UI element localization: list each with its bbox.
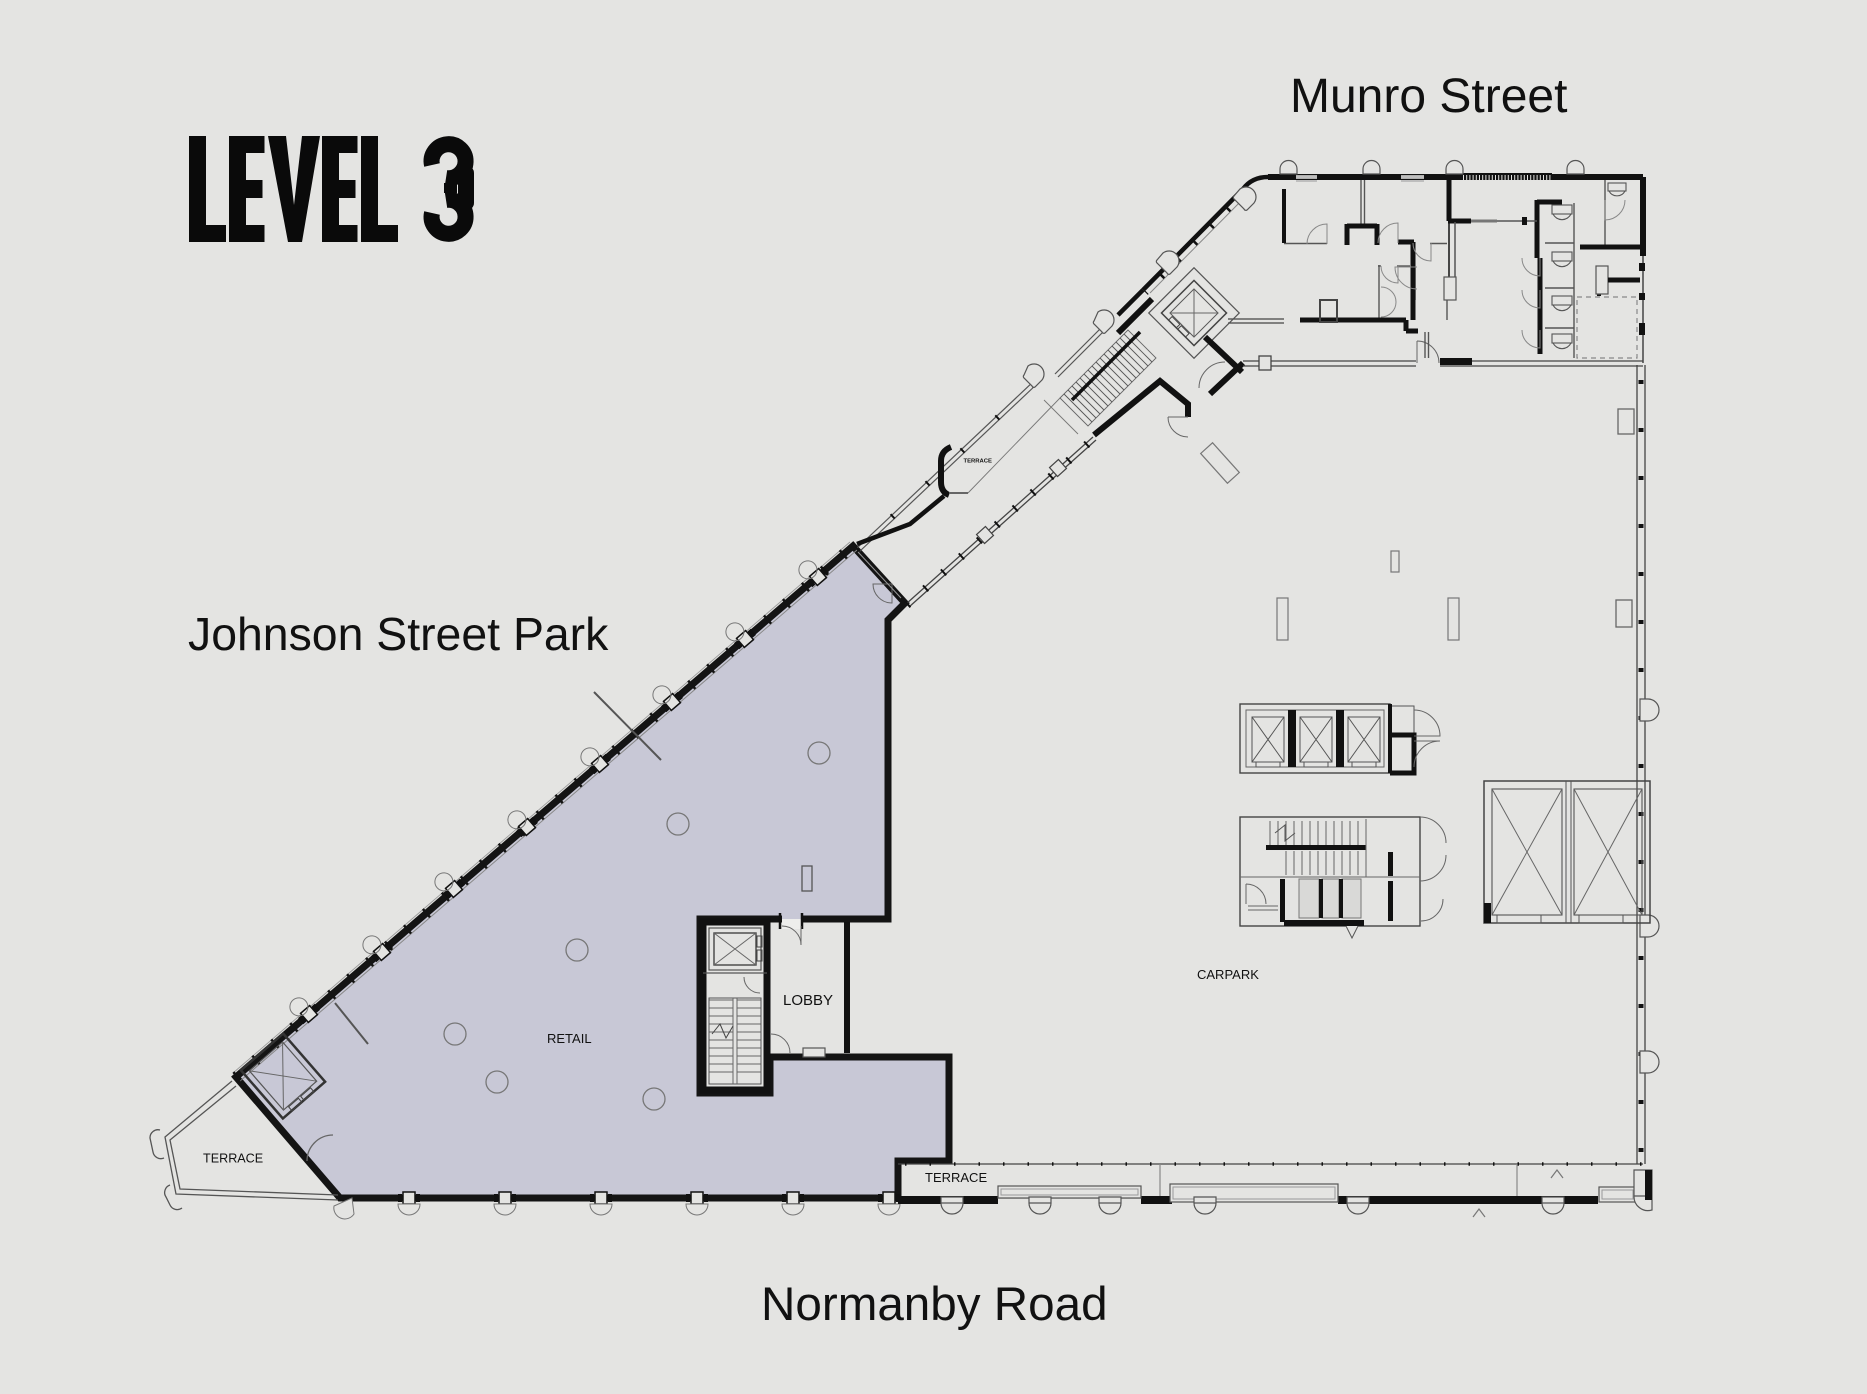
- svg-text:TERRACE: TERRACE: [925, 1170, 987, 1185]
- svg-text:Normanby Road: Normanby Road: [761, 1278, 1108, 1331]
- svg-text:TERRACE: TERRACE: [203, 1152, 263, 1166]
- svg-text:RETAIL: RETAIL: [547, 1031, 592, 1046]
- svg-text:Johnson Street Park: Johnson Street Park: [188, 608, 609, 660]
- svg-text:Munro Street: Munro Street: [1290, 70, 1567, 123]
- svg-text:LOBBY: LOBBY: [783, 992, 833, 1009]
- svg-text:CARPARK: CARPARK: [1197, 967, 1259, 982]
- svg-text:TERRACE: TERRACE: [964, 459, 993, 465]
